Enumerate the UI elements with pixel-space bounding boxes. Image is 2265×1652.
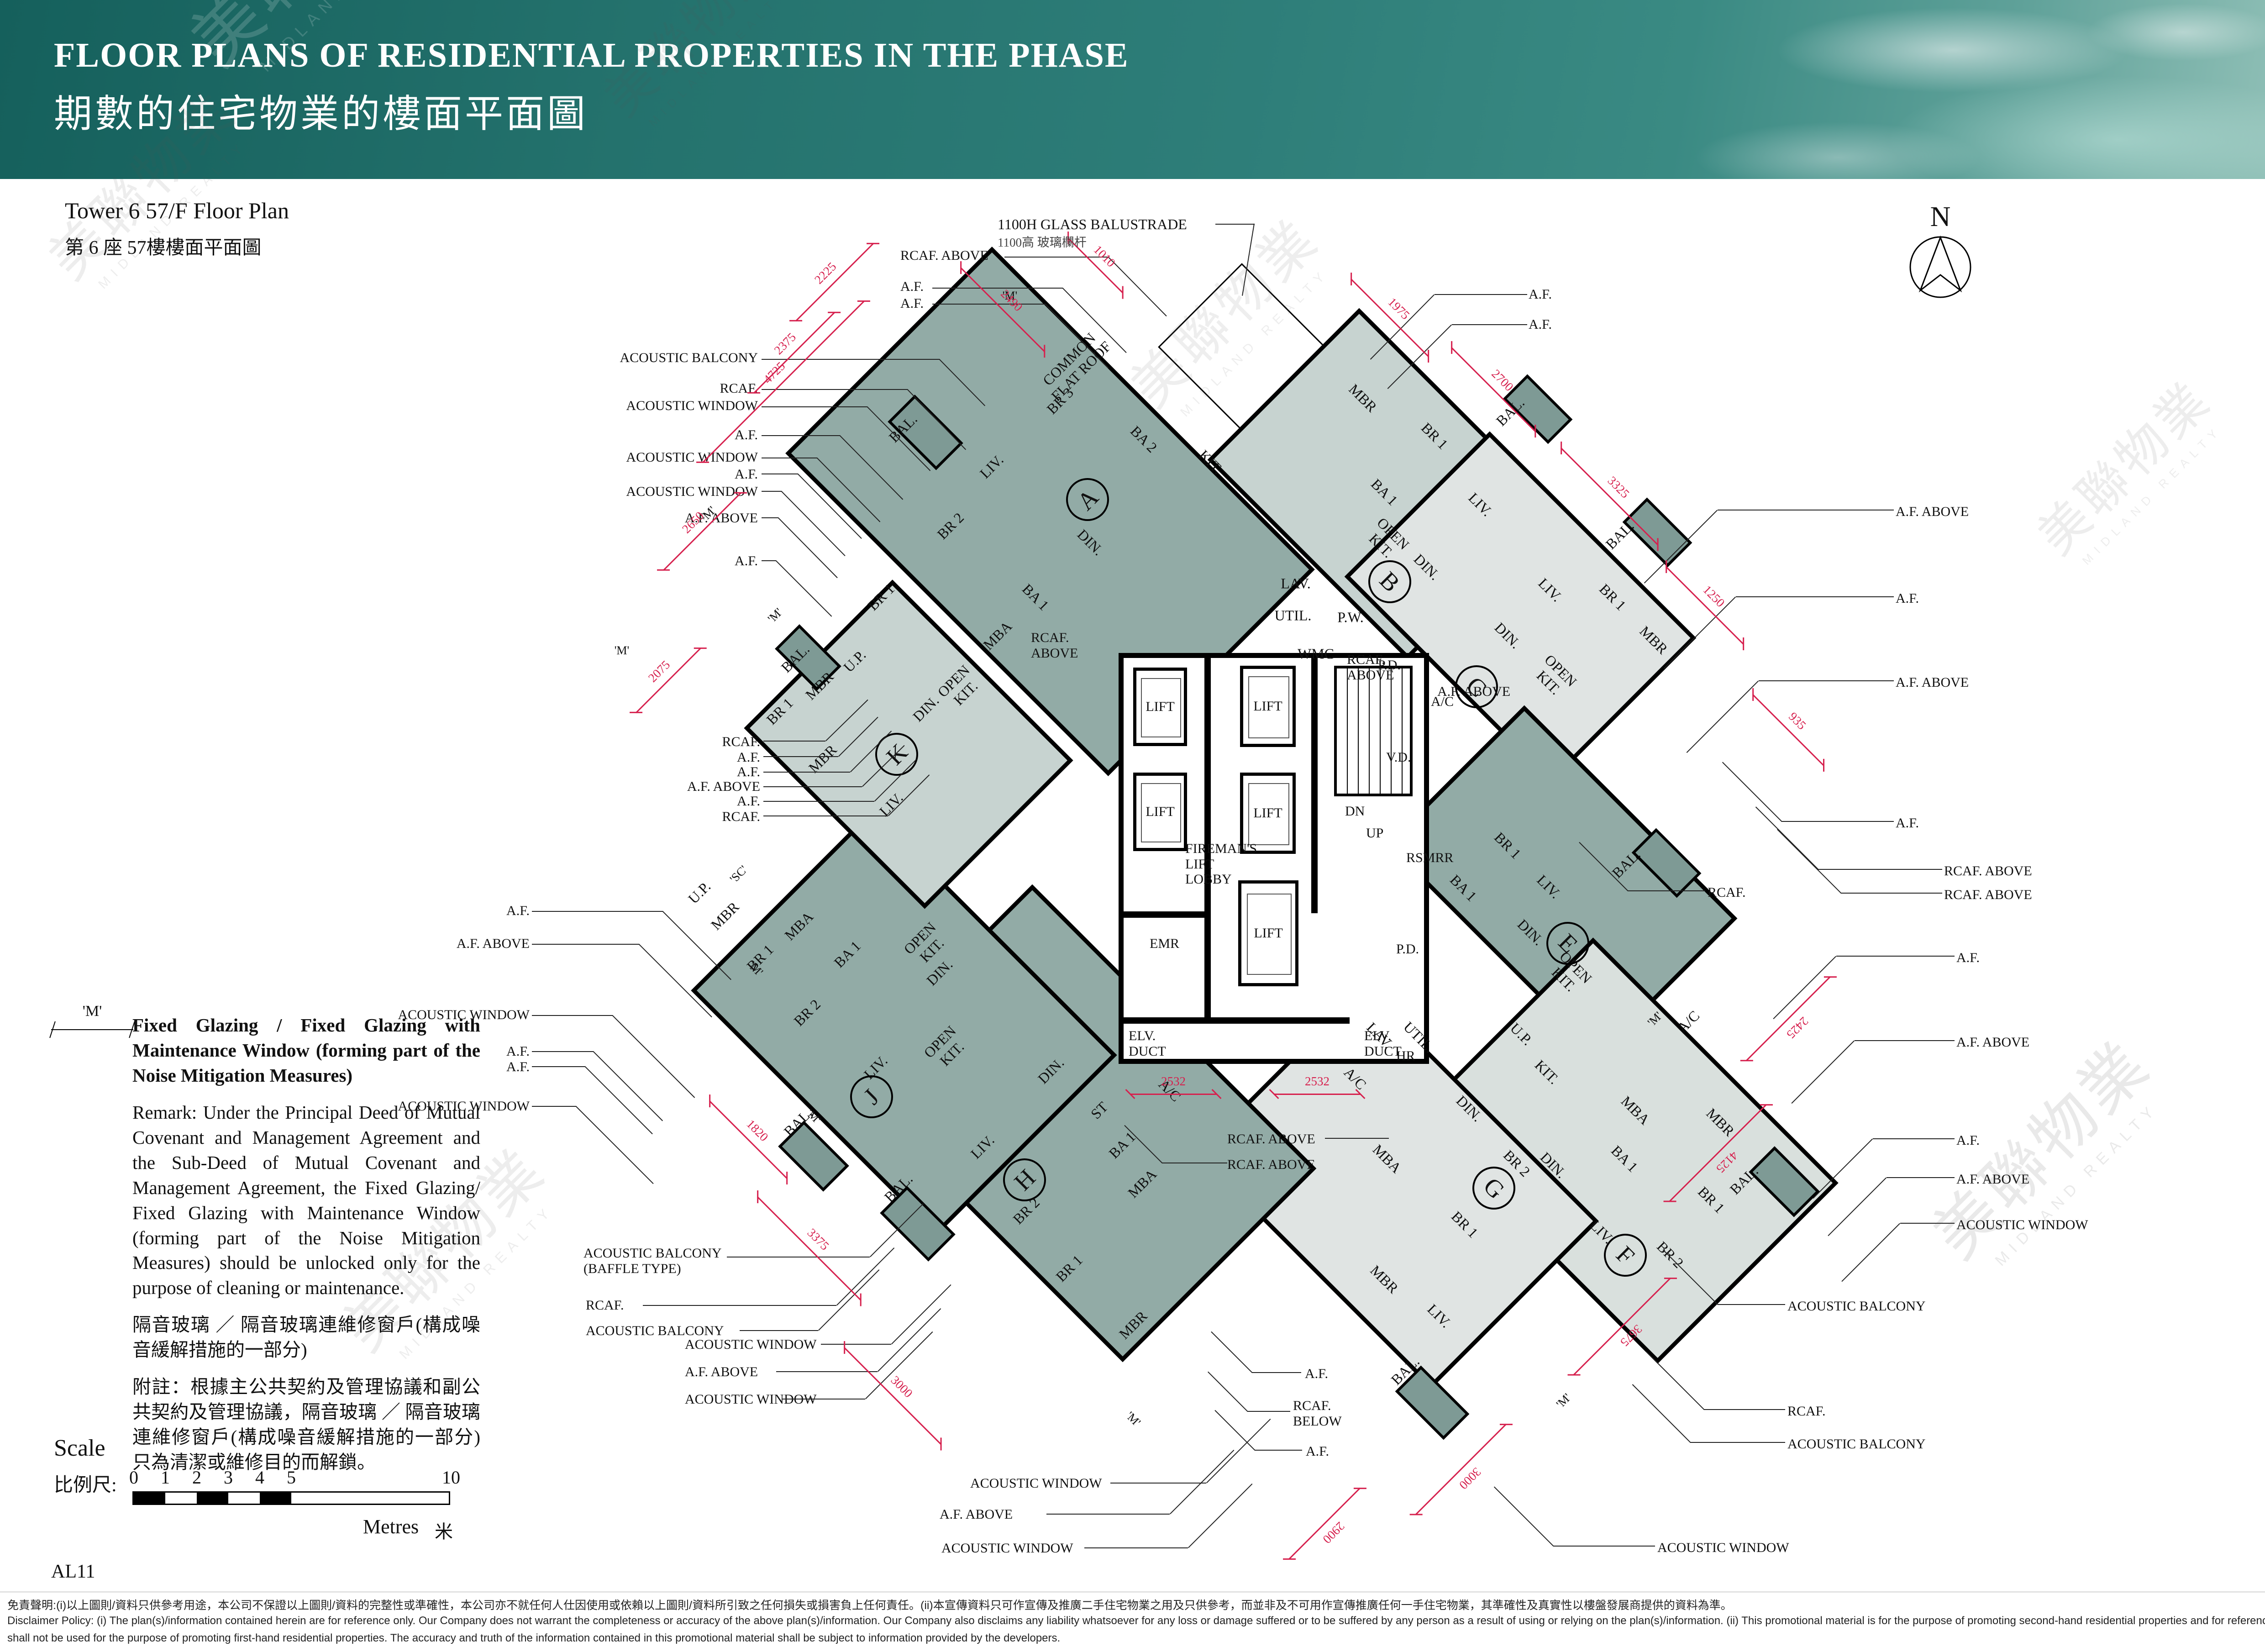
- leader-line: [763, 741, 825, 742]
- midland-watermark: 美聯物業MIDLAND REALTY: [584, 0, 801, 139]
- dimension-value: 2532: [1305, 1074, 1330, 1089]
- legend-m-symbol: 'M': [51, 1003, 133, 1044]
- watermark-en: MIDLAND REALTY: [84, 126, 262, 304]
- plan-callout: RCAF. ABOVE: [1347, 652, 1394, 683]
- plan-callout: A.F. ABOVE: [685, 1364, 758, 1380]
- leader-line: [782, 1399, 865, 1399]
- leader-line: [612, 1015, 695, 1098]
- leader-line: [532, 944, 639, 945]
- dimension-tick: [1451, 341, 1452, 354]
- plan-callout: A.F.: [1529, 317, 1552, 332]
- midland-watermark: 美聯物業MIDLAND REALTY: [1908, 1016, 2180, 1288]
- m-mark: 'SC': [727, 863, 750, 886]
- legend-note-zh: 附註：根據主公共契約及管理協議和副公共契約及管理協議，隔音玻璃 ／ 隔音玻璃連維…: [132, 1374, 480, 1475]
- watermark-cjk: 美聯物業: [584, 0, 791, 129]
- unit-letter-glyph: E: [1552, 928, 1583, 958]
- dimension-tick: [1740, 1060, 1753, 1061]
- stair-core: [1334, 666, 1413, 796]
- leader-line: [1646, 1352, 1704, 1410]
- leader-line: [1873, 1138, 1955, 1139]
- lift-shaft: LIFT: [1240, 666, 1296, 747]
- lift-label: LIFT: [1254, 926, 1282, 941]
- leader-line: [1247, 1411, 1290, 1412]
- m-mark: 'M': [1123, 1409, 1143, 1429]
- plan-callout: RCAF. ABOVE: [1944, 863, 2032, 879]
- dimension-stroke: [1130, 1094, 1217, 1095]
- plan-callout: A.F.: [1896, 591, 1919, 606]
- plan-callout: A.F.: [737, 764, 760, 780]
- leader-line: [1828, 1178, 1887, 1236]
- plan-callout: ACOUSTIC WINDOW: [970, 1476, 1102, 1491]
- leader-line: [1687, 681, 1759, 753]
- plan-callout: RCAF.: [586, 1298, 624, 1313]
- unit-letter-glyph: F: [1610, 1240, 1640, 1270]
- leader-line: [1836, 956, 1955, 957]
- leader-line: [1162, 1163, 1227, 1163]
- plan-callout: ACOUSTIC BALCONY: [620, 350, 758, 366]
- unit-letter-B: B: [1368, 560, 1411, 603]
- lift-shaft: LIFT: [1133, 668, 1187, 746]
- leader-line: [1452, 324, 1527, 325]
- plan-callout: RCAF.: [1708, 885, 1745, 900]
- plan-callout: A.F. ABOVE: [1896, 675, 1969, 690]
- dimension-stroke: [844, 1347, 941, 1445]
- leader-line: [1170, 1450, 1234, 1514]
- dimension-tick: [1760, 1104, 1773, 1105]
- dimension-line: 1820: [710, 1100, 788, 1178]
- scale-seg: [260, 1493, 291, 1504]
- disclaimer-zh: 免責聲明:(i)以上圖則/資料只供參考用途，本公司不保證以上圖則/資料的完整性或…: [7, 1596, 2258, 1613]
- core-wall: [1311, 658, 1318, 913]
- dimension-value: 2532: [1161, 1074, 1186, 1089]
- plan-callout: ACOUSTIC WINDOW: [626, 484, 758, 500]
- leader-line: [1718, 1304, 1785, 1305]
- plan-callout: A.F.: [506, 1059, 530, 1075]
- dimension-line: 2900: [1289, 1489, 1361, 1560]
- leader-line: [1084, 1547, 1188, 1548]
- unit-letter-H: H: [1003, 1158, 1046, 1201]
- plan-callout: A.F.: [737, 794, 760, 809]
- plan-callout: A.F. ABOVE: [1956, 1172, 2029, 1187]
- midland-watermark: 美聯物業MIDLAND REALTY: [164, 0, 455, 97]
- leader-line: [1208, 1372, 1248, 1412]
- dimension-value: 2375: [772, 330, 799, 358]
- dimension-stroke: [709, 1100, 788, 1179]
- leader-line: [1818, 869, 1942, 870]
- dimension-tick: [1500, 1424, 1513, 1425]
- dimension-line: 2375: [753, 312, 834, 393]
- leader-line: [762, 491, 782, 492]
- balustrade-label-en: 1100H GLASS BALUSTRADE: [998, 216, 1187, 233]
- dimension-tick: [789, 320, 802, 321]
- plan-callout: A.F.: [735, 427, 758, 443]
- leader-line: [532, 1106, 576, 1107]
- room-label: P.W.: [1337, 609, 1364, 626]
- unit-letter-glyph: B: [1374, 566, 1405, 597]
- room-label: UTIL.: [1275, 607, 1312, 624]
- leader-line: [1887, 1177, 1955, 1178]
- leader-line: [778, 517, 838, 578]
- leader-line: [763, 772, 850, 773]
- leader-line: [1553, 1546, 1655, 1547]
- leader-line: [932, 304, 1046, 305]
- leader-line: [532, 1051, 594, 1052]
- plan-callout: A.F.: [1956, 950, 1980, 966]
- unit-letter-glyph: H: [1008, 1163, 1041, 1196]
- dimension-stroke: [795, 243, 874, 321]
- watermark-cjk: 美聯物業: [164, 0, 441, 84]
- dimension-tick: [844, 1341, 845, 1354]
- plan-callout: ACOUSTIC WINDOW: [626, 450, 758, 465]
- plan-callout: A.F.: [1305, 1366, 1328, 1382]
- leader-line: [762, 560, 776, 561]
- leader-line: [593, 1051, 663, 1121]
- scale-tick-number: 10: [442, 1467, 460, 1488]
- leader-line: [878, 1308, 941, 1372]
- dimension-tick: [1824, 976, 1837, 978]
- leader-line: [1900, 1223, 1955, 1224]
- leader-line: [1736, 596, 1894, 597]
- dimension-tick: [657, 569, 670, 571]
- unit-letter-A: A: [1066, 478, 1109, 521]
- leader-line: [532, 1066, 585, 1067]
- leader-line: [1211, 1331, 1252, 1373]
- leader-line: [1782, 821, 1894, 822]
- floor-plan-page: FLOOR PLANS OF RESIDENTIAL PROPERTIES IN…: [0, 0, 2265, 1652]
- plan-callout: A.F.: [1956, 1133, 1980, 1148]
- dimension-tick: [696, 462, 709, 463]
- dimension-tick: [1410, 1514, 1423, 1515]
- plan-callout: RCAF. ABOVE: [900, 248, 988, 263]
- dimension-tick: [860, 1294, 862, 1306]
- dimension-tick: [709, 1094, 710, 1107]
- dimension-tick: [757, 1190, 758, 1203]
- unit-letter-E: E: [1546, 922, 1589, 965]
- leader-line: [762, 517, 778, 518]
- watermark-en: MIDLAND REALTY: [2070, 413, 2234, 578]
- leader-line: [1704, 1409, 1785, 1410]
- leader-line: [727, 1257, 870, 1257]
- leader-line: [1494, 1487, 1554, 1547]
- unit-letter-J: J: [850, 1075, 893, 1118]
- lift-shaft: LIFT: [1133, 773, 1187, 851]
- dimension-tick: [694, 647, 707, 649]
- dimension-value: 935: [1786, 710, 1809, 733]
- dimension-stroke: [1746, 976, 1831, 1061]
- m-mark: 'M': [615, 644, 630, 658]
- scale-tick-number: 3: [224, 1467, 233, 1488]
- midland-watermark: 美聯物業MIDLAND REALTY: [27, 69, 262, 304]
- dimension-tick: [1561, 442, 1562, 454]
- dimension-stroke: [757, 1196, 861, 1300]
- dimension-value: 2225: [812, 259, 839, 287]
- dimension-tick: [1428, 350, 1429, 363]
- unit-letter-G: G: [1472, 1167, 1515, 1210]
- plan-callout: A.F. ABOVE: [457, 936, 530, 952]
- plan-callout: ACOUSTIC WINDOW: [1657, 1540, 1789, 1556]
- scale-bar: [132, 1491, 450, 1505]
- core-wall: [1204, 658, 1211, 1018]
- lift-label: LIFT: [1253, 805, 1282, 821]
- leader-line: [762, 406, 867, 407]
- m-mark: 'M': [765, 605, 785, 626]
- dimension-tick: [1044, 345, 1045, 358]
- unit-letter-glyph: G: [1477, 1172, 1510, 1204]
- dimension-tick: [630, 712, 642, 713]
- unit-letter-glyph: A: [1071, 483, 1104, 516]
- dimension-tick: [1122, 286, 1124, 299]
- plan-callout: A.F. ABOVE: [687, 779, 760, 794]
- scale-label-en: Scale: [54, 1435, 105, 1462]
- scale-tick-number: 2: [192, 1467, 201, 1488]
- leader-line: [1110, 1483, 1206, 1484]
- dimension-tick: [1535, 425, 1536, 437]
- leader-line: [932, 288, 1063, 289]
- plan-callout: A.F. ABOVE: [1956, 1035, 2029, 1050]
- disclaimer-divider: [0, 1592, 2265, 1592]
- watermark-cjk: 美聯物業: [1908, 1016, 2167, 1275]
- plan-callout: RCAF. ABOVE: [1944, 887, 2032, 903]
- leader-line: [1842, 1223, 1900, 1282]
- unit-letter-glyph: J: [858, 1084, 885, 1110]
- plan-callout: RCAF. BELOW: [1293, 1398, 1342, 1429]
- plan-callout: A.F.: [1896, 815, 1919, 831]
- leader-line: [532, 1015, 613, 1016]
- room-label: WMC: [1298, 646, 1334, 663]
- disclaimer-en-line2: shall not be used for the purpose of pro…: [7, 1632, 2258, 1645]
- leader-line: [1628, 890, 1705, 891]
- plan-callout: ACOUSTIC WINDOW: [685, 1337, 817, 1352]
- leader-line: [532, 911, 663, 912]
- midland-watermark: 美聯物業MIDLAND REALTY: [2018, 361, 2234, 578]
- plan-callout: A.F. ABOVE: [1437, 684, 1510, 700]
- lift-label: LIFT: [1146, 804, 1174, 820]
- leader-line: [763, 815, 888, 816]
- core-label: HR: [1396, 1048, 1415, 1064]
- room-label: MBR: [708, 899, 742, 933]
- leader-line: [740, 1330, 818, 1331]
- plan-callout: RCAF. ABOVE: [1031, 630, 1078, 661]
- leader-line: [762, 389, 908, 390]
- dimension-tick: [960, 261, 962, 274]
- leader-line: [1004, 257, 1109, 258]
- dimension-line: 3000: [845, 1347, 941, 1444]
- leader-line: [1046, 1514, 1170, 1515]
- legend-remark-en: Remark: Under the Principal Deed of Mutu…: [132, 1100, 480, 1301]
- leader-line: [762, 458, 817, 458]
- core-label: ELV. DUCT: [1129, 1028, 1166, 1059]
- scale-seg: [134, 1493, 165, 1504]
- leader-line: [1632, 1384, 1691, 1443]
- leader-line: [1792, 1041, 1855, 1104]
- leader-line: [1255, 1450, 1302, 1451]
- leader-line: [1252, 1372, 1301, 1373]
- dimension-stroke: [1752, 694, 1824, 766]
- leader-line: [1435, 294, 1527, 295]
- leader-line: [1718, 510, 1894, 510]
- watermark-cjk: 美聯物業: [27, 69, 252, 294]
- dimension-stroke: [1415, 1424, 1507, 1515]
- legend-heading: Fixed Glazing / Fixed Glazing with Maint…: [132, 1013, 480, 1088]
- plan-callout: RCAF. ABOVE: [1227, 1131, 1315, 1147]
- dimension-line: 2650: [663, 492, 741, 570]
- dimension-tick: [867, 243, 879, 244]
- leader-line: [1759, 680, 1894, 681]
- plan-callout: A.F. ABOVE: [940, 1507, 1013, 1522]
- dimension-line: 2425: [1747, 977, 1831, 1061]
- dimension-tick: [1351, 273, 1352, 285]
- dimension-tick: [786, 1172, 788, 1184]
- plan-callout: A.F.: [506, 1044, 530, 1059]
- lift-label: LIFT: [1253, 699, 1282, 714]
- core-label: V.D.: [1386, 750, 1411, 765]
- leader-line: [891, 1284, 951, 1344]
- core-label: FIREMAN'S LIFT LOBBY: [1185, 841, 1257, 887]
- watermark-en: MIDLAND REALTY: [636, 0, 801, 139]
- plan-callout: ACOUSTIC BALCONY (BAFFLE TYPE): [583, 1246, 722, 1276]
- plan-callout: A.F.: [735, 553, 758, 569]
- core-wall: [1121, 911, 1211, 918]
- dimension-tick: [1283, 1558, 1296, 1560]
- plan-callout: ACOUSTIC WINDOW: [941, 1541, 1073, 1556]
- core-label: P.D.: [1396, 942, 1419, 957]
- leader-line: [1777, 829, 1841, 894]
- dimension-line: 2075: [636, 648, 700, 712]
- room-label: U.P.: [685, 878, 714, 907]
- dimension-line: 3375: [758, 1196, 861, 1300]
- leader-line: [821, 1344, 891, 1345]
- plan-callout: ACOUSTIC BALCONY: [1787, 1436, 1926, 1452]
- leader-line: [776, 560, 832, 616]
- leader-line: [762, 435, 840, 436]
- leader-line: [576, 1106, 654, 1184]
- dimension-stroke: [663, 492, 741, 571]
- scale-tick-number: 5: [287, 1467, 296, 1488]
- plan-callout: A.F.: [900, 279, 924, 295]
- leader-line: [1325, 1138, 1389, 1139]
- leader-line: [1690, 1442, 1785, 1443]
- balustrade-label-zh: 1100高 玻璃欄杆: [998, 236, 1087, 249]
- plan-callout: A.F.: [900, 296, 924, 311]
- scale-unit-zh: 米: [435, 1517, 453, 1543]
- core-wall: [1121, 1017, 1350, 1024]
- plan-callout: A.F.: [506, 903, 530, 919]
- leader-line: [1722, 762, 1782, 822]
- dimension-stroke: [753, 312, 835, 394]
- dimension-tick: [1666, 560, 1667, 573]
- dimension-tick: [1657, 538, 1659, 551]
- core-label: RSMRR: [1406, 850, 1453, 866]
- scale-label-zh: 比例尺:: [54, 1469, 117, 1497]
- leader-line: [1841, 893, 1942, 894]
- leader-line: [818, 1269, 879, 1331]
- plan-callout: A.F.: [737, 750, 760, 765]
- room-label: LAV.: [1281, 575, 1311, 592]
- dimension-stroke: [1274, 1094, 1361, 1095]
- m-mark: 'M': [1554, 1391, 1574, 1411]
- plan-callout: RCAF. ABOVE: [1227, 1157, 1315, 1173]
- plan-callout: A.F.: [735, 467, 758, 482]
- dimension-tick: [1664, 1278, 1677, 1279]
- leader-line: [643, 1305, 836, 1306]
- scale-unit-en: Metres: [363, 1515, 419, 1538]
- page-code: AL11: [51, 1561, 95, 1583]
- plan-callout: RCAF.: [1787, 1404, 1825, 1419]
- leader-line: [1215, 224, 1255, 225]
- plan-callout: RCAF.: [722, 809, 760, 825]
- plan-callout: ACOUSTIC WINDOW: [626, 398, 758, 414]
- leader-line: [1206, 1419, 1271, 1483]
- leader-line: [762, 474, 798, 474]
- dimension-stroke: [1288, 1488, 1361, 1560]
- leader-line: [1188, 1484, 1252, 1548]
- leader-line: [1214, 1410, 1255, 1451]
- plan-callout: A.F. ABOVE: [1896, 504, 1969, 520]
- plan-callout: RCAF.: [722, 734, 760, 750]
- leader-line: [763, 756, 838, 757]
- dimension-line: 2225: [795, 243, 873, 321]
- scale-tick-number: 1: [161, 1467, 170, 1488]
- dimension-tick: [747, 392, 760, 394]
- core-label: EMR: [1150, 936, 1179, 952]
- lift-shaft: LIFT: [1238, 880, 1298, 986]
- watermark-cjk: 美聯物業: [2018, 361, 2225, 568]
- dimension-tick: [1743, 637, 1744, 650]
- dimension-tick: [1568, 1374, 1581, 1376]
- dimension-tick: [857, 300, 870, 302]
- plan-callout: ACOUSTIC BALCONY: [1787, 1299, 1926, 1314]
- dimension-line: 3000: [1416, 1425, 1507, 1515]
- dimension-tick: [828, 312, 841, 313]
- leader-line: [763, 786, 862, 787]
- scale-tick-number: 0: [129, 1467, 138, 1488]
- plan-callout: ACOUSTIC BALCONY: [586, 1323, 724, 1339]
- dimension-tick: [1664, 1201, 1676, 1202]
- leader-line: [776, 1371, 878, 1372]
- dimension-tick: [1752, 688, 1754, 701]
- lift-label: LIFT: [1146, 699, 1174, 715]
- dimension-line: 935: [1753, 694, 1824, 765]
- unit-letter-glyph: K: [880, 738, 913, 770]
- dimension-stroke: [636, 648, 701, 714]
- plan-callout: RCAF.: [720, 381, 758, 396]
- core-label: UP: [1366, 826, 1383, 841]
- legend-block: Fixed Glazing / Fixed Glazing with Maint…: [132, 1013, 480, 1487]
- dimension-tick: [941, 1437, 942, 1450]
- dimension-tick: [1354, 1488, 1366, 1489]
- legend-m-line: [51, 1029, 133, 1030]
- leader-line: [763, 801, 874, 802]
- dimension-value: 2075: [646, 658, 673, 685]
- plan-callout: ACOUSTIC WINDOW: [1956, 1217, 2088, 1233]
- plan-callout: A.F.: [1306, 1444, 1329, 1459]
- scale-seg: [197, 1493, 228, 1504]
- dimension-tick: [734, 492, 747, 494]
- core-label: DN: [1345, 804, 1365, 819]
- legend-remark-zh: 隔音玻璃 ／ 隔音玻璃連維修窗戶(構成噪音緩解措施的一部分): [132, 1312, 480, 1363]
- legend-m-label: 'M': [83, 1003, 102, 1020]
- dimension-tick: [1823, 759, 1824, 772]
- disclaimer-en-line1: Disclaimer Policy: (i) The plan(s)/infor…: [7, 1615, 2258, 1627]
- scale-tick-number: 4: [255, 1467, 264, 1488]
- plan-callout: A.F.: [1529, 287, 1552, 302]
- leader-line: [1855, 1040, 1955, 1041]
- leader-line: [1773, 956, 1836, 1019]
- watermark-en: MIDLAND REALTY: [234, 0, 454, 97]
- unit-letter-F: F: [1604, 1234, 1647, 1277]
